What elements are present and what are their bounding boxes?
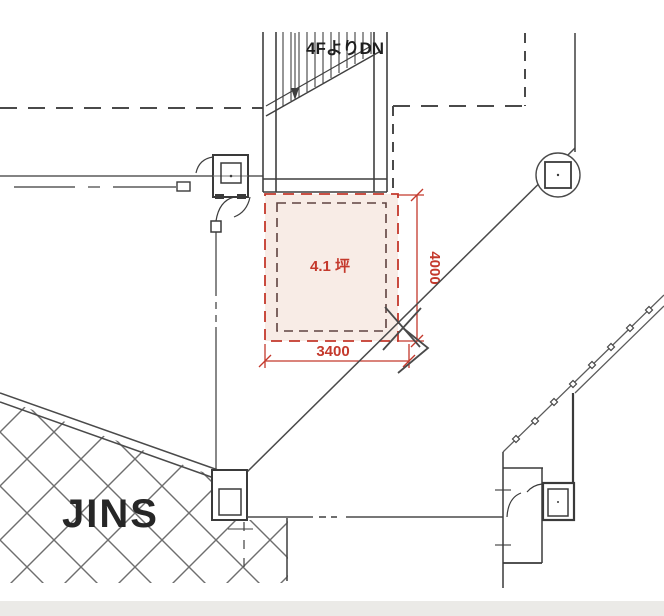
dimension-depth [397,189,424,347]
canvas-edge-band [0,601,664,616]
door-swing-arc [216,197,234,221]
lease-area: 4.1 坪 [265,194,398,341]
door-post [211,221,221,232]
floor-plan-drawing: JINS [0,0,664,616]
tenant-label: JINS [62,492,159,536]
door-swing-arc [507,493,521,517]
stair-direction-line [291,33,299,100]
dimension-depth-label: 4000 [426,251,443,284]
door-swing-arc [196,157,213,173]
door-swing-arc [234,197,250,217]
lease-demising-line [211,197,234,470]
door-jamb [177,182,190,191]
tenant-hatch [0,398,211,583]
door-swing-arc [527,484,542,492]
circled-column [536,33,580,197]
storefront-diagonal [503,295,664,452]
dimension-width-label: 3400 [316,343,349,360]
upper-column [196,155,250,217]
stair-note-label: 4FよりDN [306,39,384,58]
floor-plan-canvas: JINS [0,0,664,616]
lease-area-label: 4.1 坪 [310,258,350,275]
